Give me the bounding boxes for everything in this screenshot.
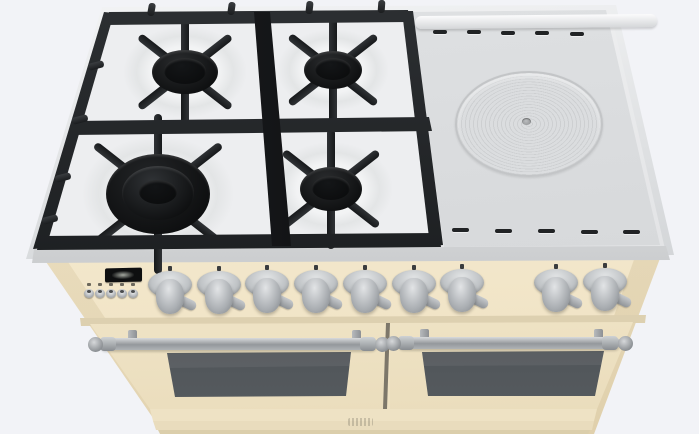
clock-button[interactable]: [117, 289, 127, 298]
clock-button-icon: [120, 283, 124, 286]
range-cooker-render: [0, 0, 699, 434]
plate-handle-rail: [415, 14, 657, 29]
burner-ring: [164, 58, 206, 84]
vent-slot: [538, 229, 555, 233]
clock-button-icon: [109, 283, 113, 286]
burner-control-knob[interactable]: [243, 264, 291, 316]
handle-ball-finial: [618, 336, 633, 351]
clock-button[interactable]: [128, 289, 138, 298]
clock-button-icon: [131, 283, 135, 286]
burner-control-knob[interactable]: [146, 265, 194, 317]
handle-bar[interactable]: [100, 338, 377, 350]
clock-button-dot: [98, 290, 102, 293]
handle-cap: [602, 336, 618, 350]
burner-control-knob[interactable]: [390, 264, 438, 316]
burner-ring: [139, 180, 177, 204]
clock-display: [105, 268, 142, 283]
grate-tab: [378, 0, 386, 13]
vent-slot: [581, 230, 598, 234]
handle-ball-finial: [386, 336, 401, 351]
vent-slot: [623, 230, 640, 234]
handle-ball-finial: [88, 337, 103, 352]
clock-button-icon: [87, 283, 91, 286]
knob-grip[interactable]: [253, 278, 281, 313]
burner-control-knob[interactable]: [438, 263, 486, 315]
vent-slot: [495, 229, 512, 233]
oven-control-knob[interactable]: [581, 262, 629, 314]
vent-slot: [501, 31, 515, 35]
clock-button[interactable]: [106, 289, 116, 298]
knob-grip[interactable]: [205, 279, 233, 314]
clock-button[interactable]: [95, 289, 105, 298]
clock-button-dot: [87, 290, 91, 293]
vent-slot: [467, 30, 481, 34]
knob-grip[interactable]: [591, 276, 619, 311]
burner-ring: [312, 176, 350, 200]
burner-ring: [315, 58, 351, 80]
brand-badge: [348, 418, 373, 426]
clock-button[interactable]: [84, 289, 94, 298]
knob-grip[interactable]: [448, 277, 476, 312]
vent-slot: [570, 32, 584, 36]
knob-grip[interactable]: [542, 277, 570, 312]
griddle-center-plug: [522, 118, 531, 125]
oven-control-knob[interactable]: [532, 263, 580, 315]
vent-slot: [452, 228, 469, 232]
handle-bar[interactable]: [398, 337, 620, 349]
burner-control-knob[interactable]: [341, 264, 389, 316]
clock-button-dot: [120, 290, 124, 293]
handle-cap: [360, 337, 376, 351]
knob-grip[interactable]: [156, 279, 184, 314]
clock-button-dot: [131, 290, 135, 293]
burner-control-knob[interactable]: [292, 264, 340, 316]
grate-tab: [305, 1, 313, 15]
knob-grip[interactable]: [302, 278, 330, 313]
clock-button-dot: [109, 290, 113, 293]
knob-grip[interactable]: [400, 278, 428, 313]
vent-slot: [535, 31, 549, 35]
clock-button-icon: [98, 283, 102, 286]
knob-grip[interactable]: [351, 278, 379, 313]
burner-control-knob[interactable]: [195, 265, 243, 317]
vent-slot: [433, 30, 447, 34]
clock-digits-glow: [112, 271, 134, 279]
